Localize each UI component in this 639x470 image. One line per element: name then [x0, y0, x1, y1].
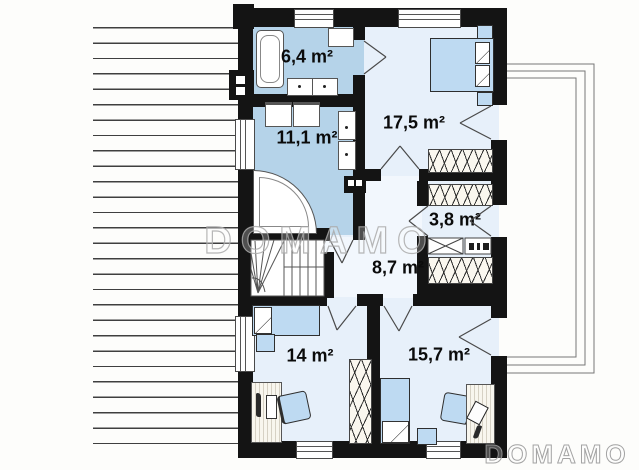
- floor-plan: 6,4 m² 11,1 m² 17,5 m² 3,8 m² 8,7 m² 14 …: [0, 0, 639, 470]
- plan-overlay: DOMAMO DOMAMO: [0, 0, 639, 470]
- door-bedroom-right: [384, 306, 412, 331]
- door-bedroom-master: [381, 146, 419, 169]
- door-balcony-master: [460, 106, 491, 139]
- door-wardrobe-ext: [470, 206, 491, 236]
- door-bedroom-left: [328, 306, 356, 330]
- balcony-roof-outline: [507, 64, 594, 373]
- door-ensuite: [364, 41, 386, 74]
- door-balcony-right: [459, 319, 491, 355]
- wardrobe-shelf: [428, 238, 491, 254]
- watermark-center: DOMAMO: [204, 220, 435, 262]
- doors: [328, 41, 491, 355]
- watermark-bottom-right: DOMAMO: [484, 439, 629, 469]
